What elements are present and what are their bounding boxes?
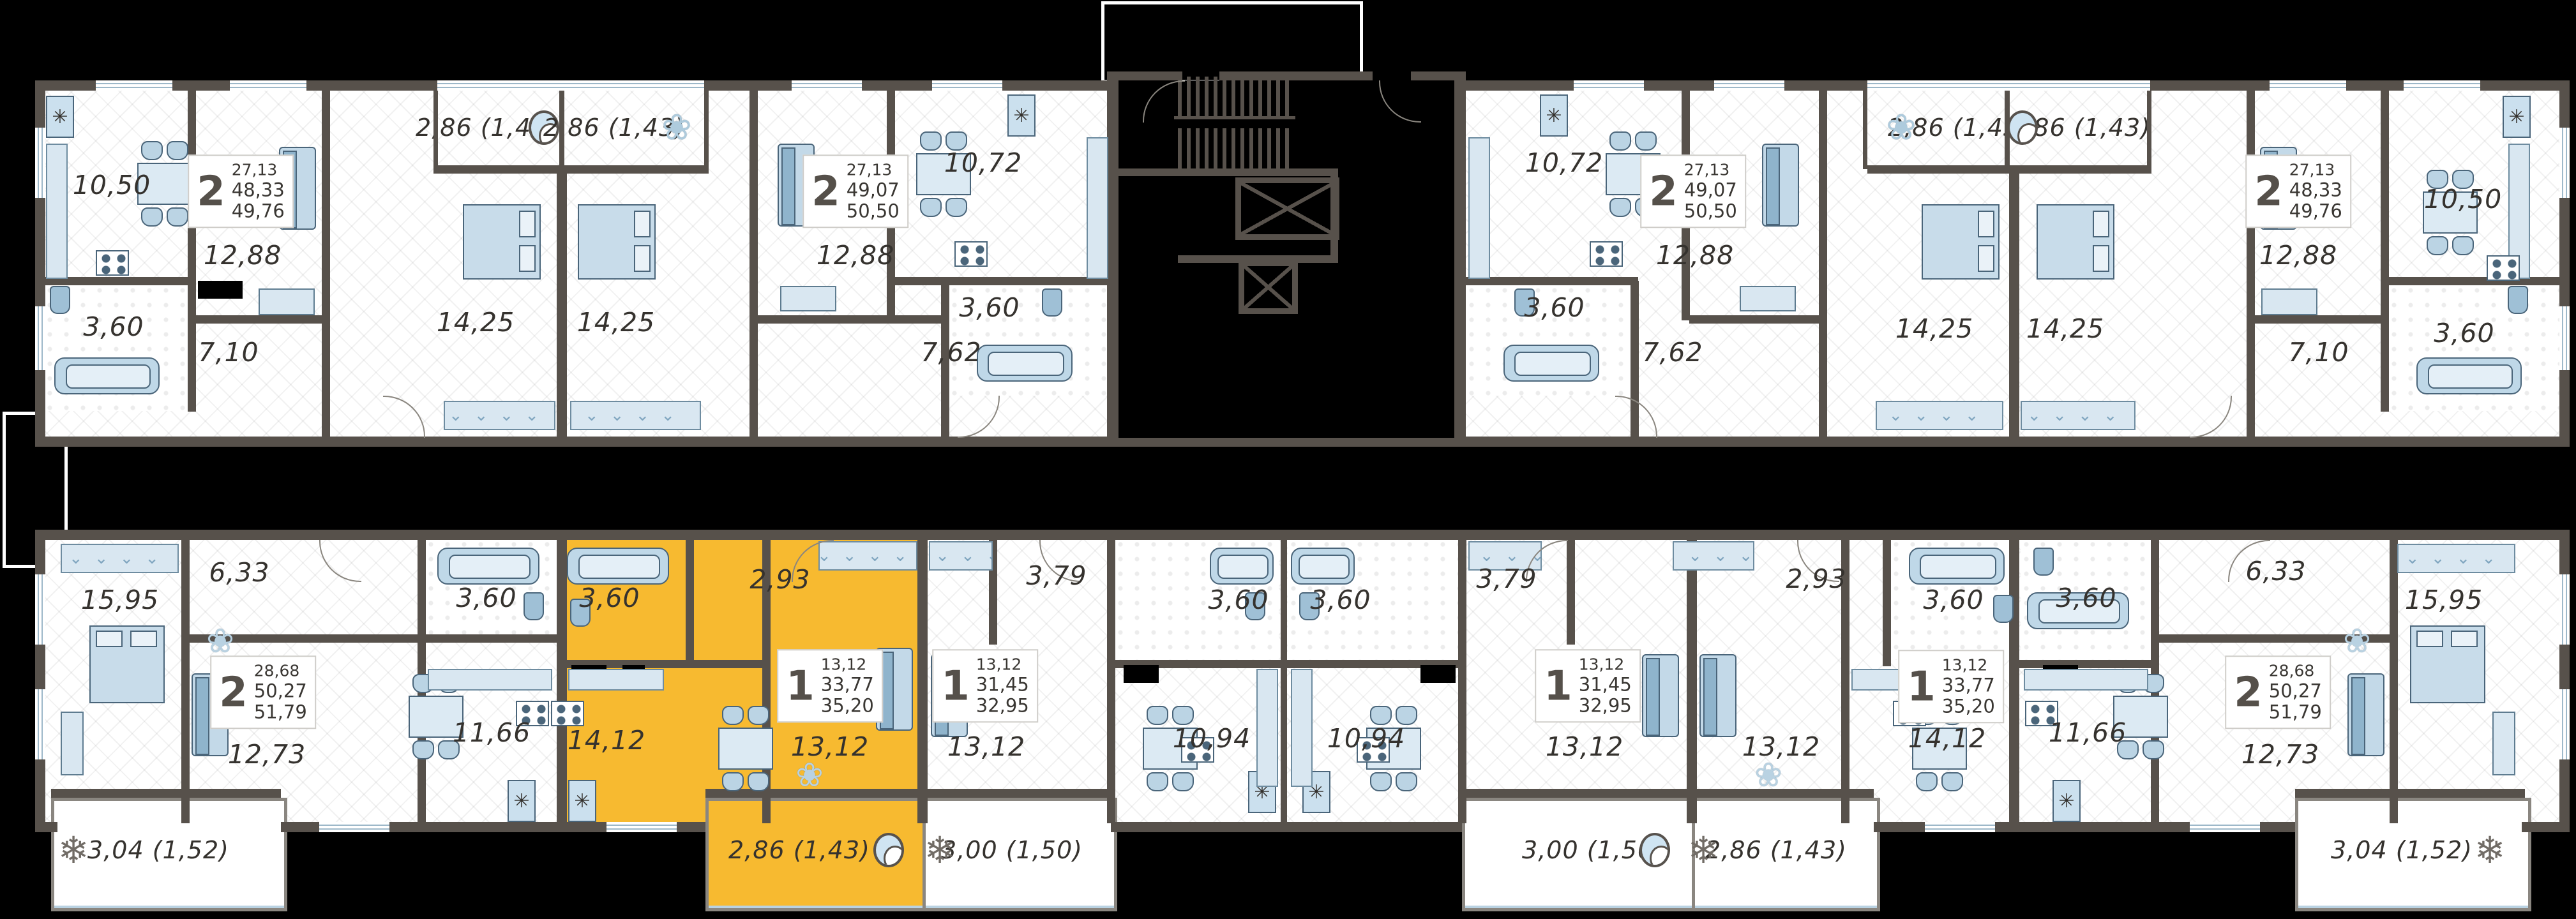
room-area-label-a2-kitchen: 10,72 <box>944 147 1022 178</box>
unit-info-a1: 227,1348,3349,76 <box>188 154 294 228</box>
room-area-label-a3-living: 12,88 <box>1656 240 1734 271</box>
window <box>2190 822 2260 832</box>
balcony-area-label: 2,86 (1,43) <box>1705 836 1847 864</box>
room-area-label-b3-kitchen: 10,94 <box>1173 723 1251 754</box>
unit-info-b5: 113,1233,7735,20 <box>1898 650 2004 723</box>
fern-icon: ❄ <box>924 828 956 872</box>
room-area-label-b5-hall: 2,93 <box>1786 564 1846 594</box>
unit-info-a2: 227,1349,0750,50 <box>802 154 908 228</box>
core-wall <box>1330 168 1338 263</box>
room-area-label-a2-bedroom: 14,25 <box>577 307 655 338</box>
core-wall <box>1178 255 1334 263</box>
area-main: 50,27 <box>2269 680 2322 701</box>
room-area-label-b4-bath: 3,60 <box>1310 585 1371 615</box>
area-total: 35,20 <box>1942 696 1995 717</box>
area-living: 27,13 <box>1684 161 1737 179</box>
chair-icon <box>1639 833 1670 867</box>
wall <box>557 530 567 823</box>
fern-icon: ❄ <box>1688 828 1719 872</box>
area-total: 32,95 <box>976 695 1029 716</box>
room-area-label-b1-bedroom: 15,95 <box>81 585 159 615</box>
room-area-label-b2-hall: 2,93 <box>749 564 810 595</box>
area-main: 33,77 <box>1942 675 1995 696</box>
room-area-label-b4-hall: 3,79 <box>1476 564 1537 594</box>
wall <box>1687 530 1697 823</box>
fern-icon: ❄ <box>58 828 89 872</box>
rooms-count: 1 <box>786 666 815 706</box>
unit-info-b3: 113,1231,4532,95 <box>932 649 1038 722</box>
room-area-label-a4-bath: 3,60 <box>2434 318 2494 348</box>
rooms-count: 1 <box>1907 666 1936 707</box>
wall <box>917 530 928 823</box>
core-wall <box>1107 71 1119 447</box>
room-area-label-b6-hall: 6,33 <box>2245 556 2306 587</box>
window <box>2559 128 2570 198</box>
room-area-label-a3-bedroom: 14,25 <box>1895 313 1973 344</box>
area-main: 31,45 <box>976 674 1029 695</box>
area-living: 13,12 <box>1942 656 1995 675</box>
room-area-label-b4-room: 13,12 <box>1546 731 1623 762</box>
wall <box>2522 822 2570 832</box>
area-living: 27,13 <box>232 161 285 179</box>
rooms-count: 2 <box>2254 171 2283 212</box>
room-area-label-b2-kitchen: 14,12 <box>568 725 645 756</box>
area-total: 50,50 <box>847 200 900 221</box>
staircase <box>1178 77 1292 168</box>
rooms-count: 1 <box>941 666 970 706</box>
room-area-label-b4-kitchen: 10,94 <box>1327 723 1405 754</box>
elevator-shaft <box>1239 260 1298 314</box>
room-area-label-a4-kitchen: 10,50 <box>2424 184 2502 214</box>
fern-icon: ❄ <box>2474 828 2506 872</box>
room-area-label-b6-bath: 3,60 <box>2056 583 2116 613</box>
wall <box>1281 539 1287 823</box>
room-area-label-a1-kitchen: 10,50 <box>73 170 151 200</box>
unit-info-b1: 228,6850,2751,79 <box>210 655 316 729</box>
area-main: 49,07 <box>847 179 900 200</box>
room-area-label-b5-bath: 3,60 <box>1923 585 1984 615</box>
room-area-label-a4-bedroom: 14,25 <box>2026 313 2104 344</box>
balcony-area-label: 2,86 (1,43) <box>728 836 870 864</box>
room-area-label-a4-living: 12,88 <box>2259 240 2337 271</box>
wall <box>557 165 567 438</box>
floor-plan: 2,86 (1,43)2,86 (1,43)❀2,86 (1,43)❀2,86 … <box>0 0 2576 919</box>
core-wall <box>1219 71 1373 80</box>
room-area-label-b5-kitchen: 14,12 <box>1908 723 1986 754</box>
room-area-label-b6-living: 12,73 <box>2241 739 2319 770</box>
rooms-count: 1 <box>1544 666 1572 706</box>
room-area-label-b6-kitchen: 11,66 <box>2049 717 2127 748</box>
area-total: 35,20 <box>821 695 874 716</box>
area-main: 50,27 <box>254 680 307 701</box>
room-area-label-a2-bath: 3,60 <box>959 292 1020 323</box>
room-area-label-a3-bath: 3,60 <box>1524 292 1585 323</box>
wall <box>35 437 2570 447</box>
wall <box>35 530 2570 540</box>
room-area-label-b2-room: 13,12 <box>791 731 869 762</box>
area-living: 27,13 <box>847 161 900 179</box>
unit-info-a3: 227,1349,0750,50 <box>1640 154 1746 228</box>
balcony-area-label: 3,00 (1,50) <box>941 836 1083 864</box>
rooms-count: 2 <box>219 672 248 713</box>
room-area-label-a4-hall: 7,10 <box>2288 337 2349 368</box>
area-living: 28,68 <box>2269 662 2322 680</box>
area-total: 50,50 <box>1684 200 1737 221</box>
area-living: 13,12 <box>1579 655 1632 674</box>
area-main: 31,45 <box>1579 674 1632 695</box>
wall <box>559 89 564 169</box>
core-wall <box>1454 71 1466 447</box>
room-area-label-a1-hall: 7,10 <box>198 337 259 368</box>
room-area-label-b3-hall: 3,79 <box>1026 560 1087 591</box>
balcony-area-label: 3,04 (1,52) <box>2331 836 2473 864</box>
area-living: 27,13 <box>2289 161 2342 179</box>
window <box>1925 822 1995 832</box>
balcony-area-label: 3,04 (1,52) <box>87 836 229 864</box>
wall <box>2009 165 2019 438</box>
area-total: 49,76 <box>2289 200 2342 221</box>
unit-info-a4: 227,1348,3349,76 <box>2245 154 2351 228</box>
area-living: 13,12 <box>821 655 874 674</box>
rooms-count: 2 <box>197 171 225 212</box>
area-total: 32,95 <box>1579 695 1632 716</box>
window <box>2559 306 2570 370</box>
room-area-label-a1-bath: 3,60 <box>83 311 144 342</box>
room-area-label-a1-living: 12,88 <box>204 240 282 271</box>
unit-info-b4: 113,1231,4532,95 <box>1535 649 1641 722</box>
area-living: 28,68 <box>254 662 307 680</box>
area-total: 51,79 <box>2269 701 2322 722</box>
area-main: 48,33 <box>2289 179 2342 200</box>
room-area-label-a1-bedroom: 14,25 <box>437 307 515 338</box>
room-area-label-b3-room: 13,12 <box>947 731 1025 762</box>
room-area-label-a2-living: 12,88 <box>817 240 894 271</box>
room-area-label-b5-room: 13,12 <box>1742 731 1820 762</box>
core-wall <box>1119 71 1182 80</box>
wall <box>2009 530 2019 823</box>
apartment-a1[interactable] <box>44 89 558 438</box>
room-area-label-b1-living: 12,73 <box>228 739 306 770</box>
core-wall <box>1411 71 1454 80</box>
room-area-label-b3-bath: 3,60 <box>1208 585 1269 615</box>
unit-info-b6: 228,6850,2751,79 <box>2225 655 2331 729</box>
room-area-label-a3-hall: 7,62 <box>1642 337 1703 368</box>
elevator-shaft <box>1235 177 1339 240</box>
room-area-label-b1-hall: 6,33 <box>209 557 269 588</box>
apartment-a3[interactable] <box>1466 89 2009 438</box>
area-total: 49,76 <box>232 200 285 221</box>
room-area-label-b1-kitchen: 11,66 <box>453 717 531 748</box>
area-living: 13,12 <box>976 655 1029 674</box>
window <box>319 822 389 832</box>
room-area-label-b6-bedroom: 15,95 <box>2405 585 2483 615</box>
window <box>2559 689 2570 759</box>
room-area-label-b2-bath: 3,60 <box>579 583 640 613</box>
area-total: 51,79 <box>254 701 307 722</box>
chair-icon <box>873 833 904 867</box>
area-main: 33,77 <box>821 674 874 695</box>
room-area-label-a3-kitchen: 10,72 <box>1525 147 1603 178</box>
room-area-label-a2-hall: 7,62 <box>921 337 981 368</box>
room-area-label-b1-bath: 3,60 <box>456 583 516 613</box>
area-main: 49,07 <box>1684 179 1737 200</box>
rooms-count: 2 <box>1649 171 1678 212</box>
unit-info-b2: 113,1233,7735,20 <box>777 649 883 722</box>
building-outline <box>1101 1 1363 83</box>
rooms-count: 2 <box>811 171 840 212</box>
window <box>2559 574 2570 645</box>
rooms-count: 2 <box>2234 672 2263 713</box>
window <box>606 822 677 832</box>
core-wall <box>1119 168 1333 176</box>
wall <box>35 822 57 832</box>
wall <box>1111 822 1462 832</box>
area-main: 48,33 <box>232 179 285 200</box>
